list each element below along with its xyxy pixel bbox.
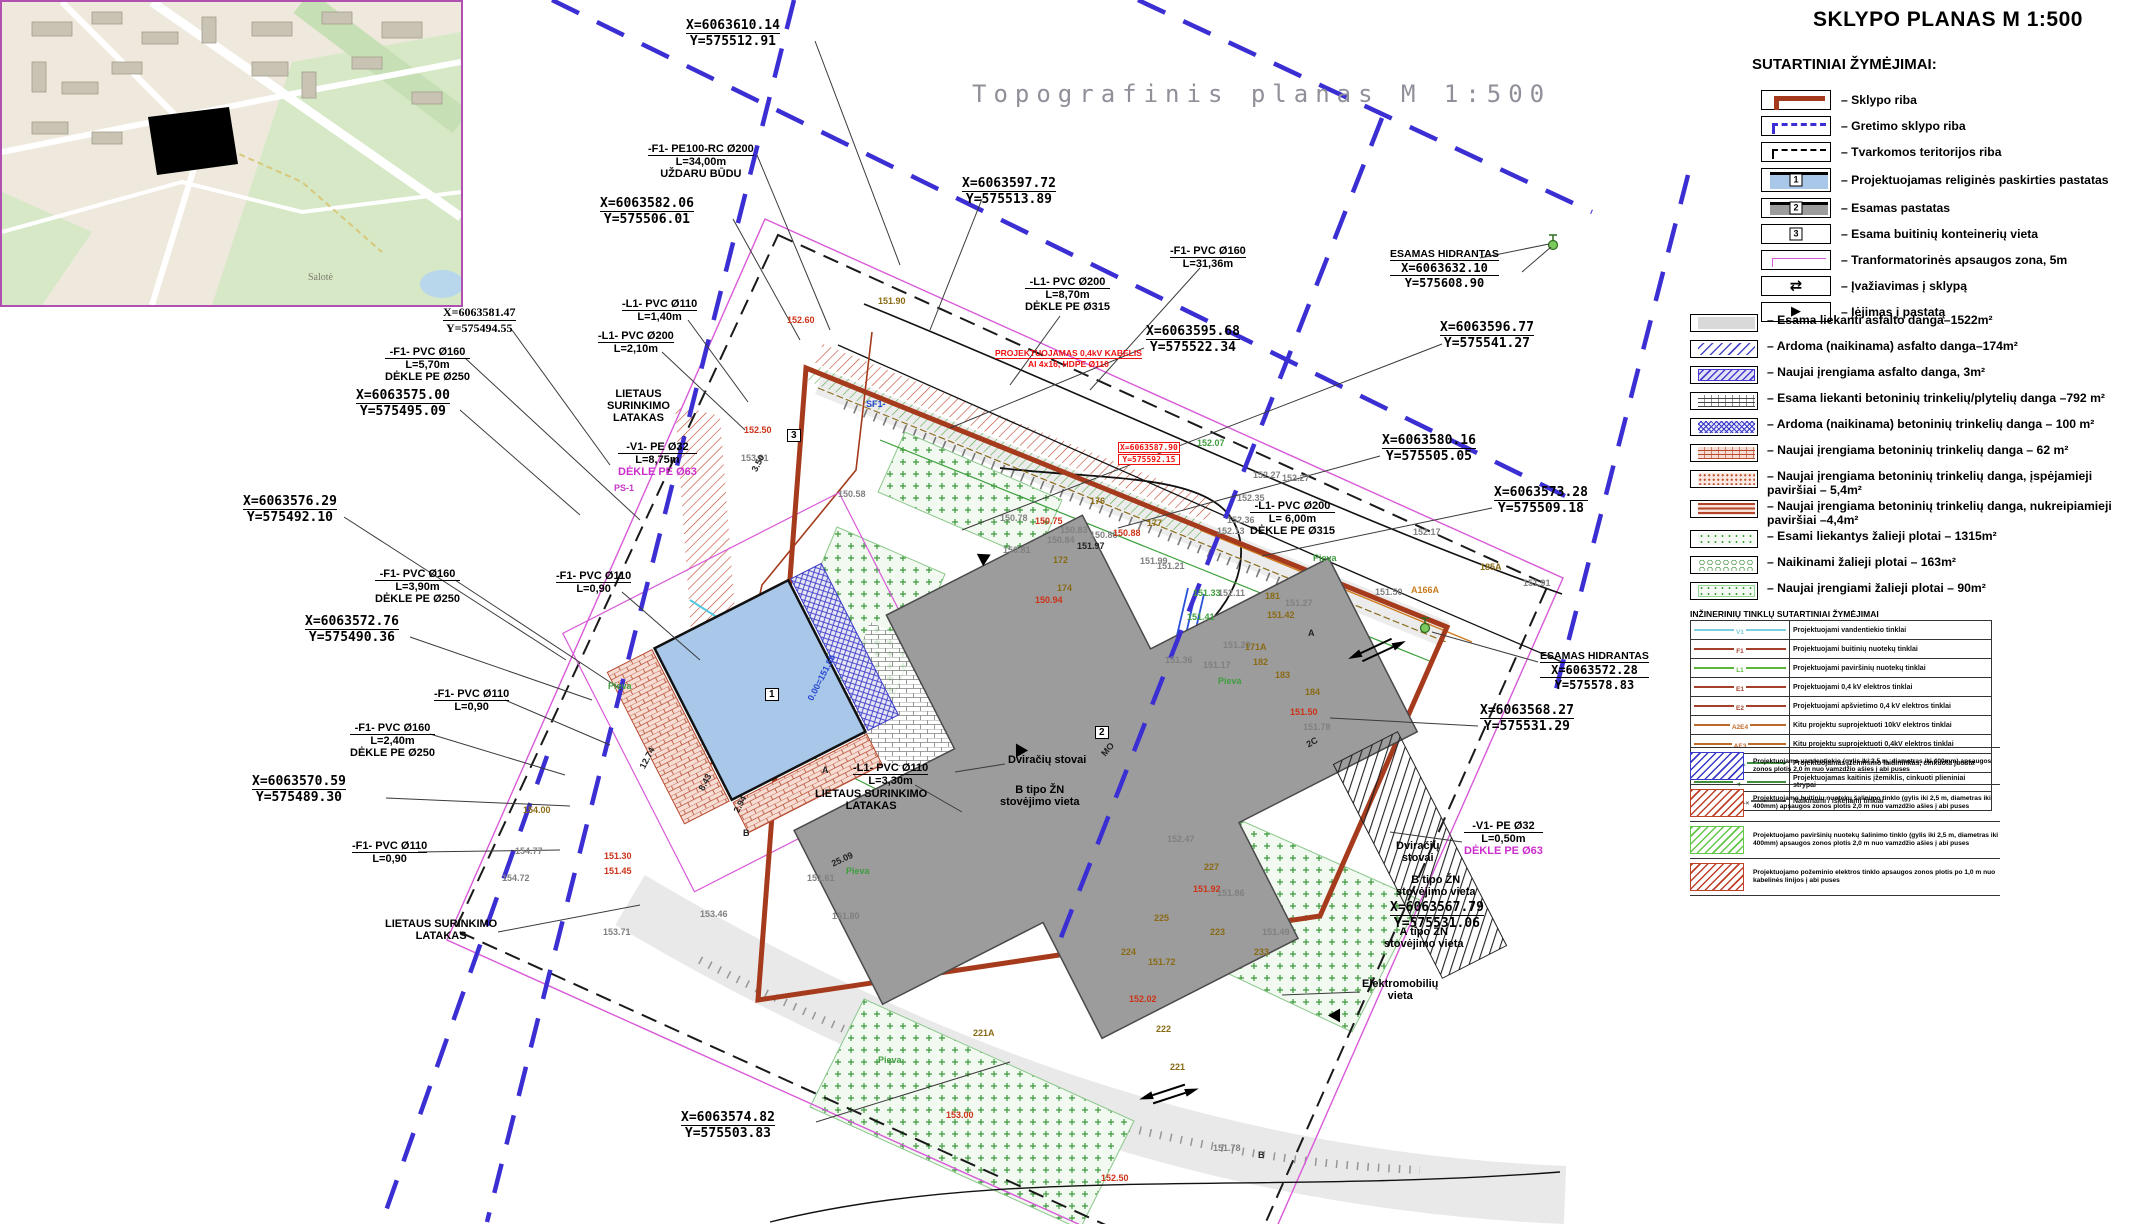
network-label: Projektuojami 0,4 kV elektros tinklai [1790, 678, 1992, 697]
legend-symbol-swatch [1761, 90, 1831, 110]
networks-table-row: A2E4 Kitu projektu suprojektuoti 10kV el… [1691, 716, 1992, 735]
legend-symbol-label: – Tranformatorinės apsaugos zona, 5m [1841, 253, 2067, 267]
legend-area-item: – Esami liekantys žalieji plotai – 1315m… [1690, 527, 2128, 553]
protection-note-item: Projektuojamo paviršinių nuotekų šalinim… [1690, 821, 2000, 858]
network-symbol-cell: E2 [1691, 697, 1790, 716]
network-code: E1 [1734, 686, 1746, 693]
legend-symbol-item: – Įvažiavimas į sklypą [1761, 276, 2109, 296]
legend-symbol-item: – Esama buitinių konteinerių vieta [1761, 224, 2109, 244]
legend-symbol-swatch [1761, 250, 1831, 270]
legend-symbol-item: – Tvarkomos teritorijos riba [1761, 142, 2109, 162]
networks-table-row: V1 Projektuojami vandentiekio tinklai [1691, 621, 1992, 640]
protection-note-swatch [1690, 752, 1744, 780]
legend-area-label: – Naujai įrengiami žalieji plotai – 90m² [1767, 582, 1986, 596]
legend-symbol-swatch [1761, 142, 1831, 162]
legend-area-item: – Ardoma (naikinama) betoninių trinkelių… [1690, 415, 2128, 441]
network-label: Projektuojami buitinių nuotekų tinklai [1790, 640, 1992, 659]
legend-symbol-label: – Esama buitinių konteinerių vieta [1841, 227, 2038, 241]
legend-symbol-item: – Tranformatorinės apsaugos zona, 5m [1761, 250, 2109, 270]
legend-area-swatch [1690, 500, 1758, 518]
legend-area-swatch [1690, 470, 1758, 488]
networks-table-heading: INŽINERINIŲ TINKLŲ SUTARTINIAI ŽYMĖJIMAI [1690, 609, 1879, 619]
network-symbol-cell: V1 [1691, 621, 1790, 640]
legend-area-swatch [1690, 418, 1758, 436]
legend-symbol-label: – Įvažiavimas į sklypą [1841, 279, 1967, 293]
legend-symbol-label: – Projektuojamas religinės paskirties pa… [1841, 173, 2109, 187]
legend-area-label: – Naujai įrengiama betoninių trinkelių d… [1767, 500, 2128, 527]
network-code: E2 [1734, 705, 1746, 712]
protection-note-text: Projektuojamo paviršinių nuotekų šalinim… [1753, 832, 2000, 848]
legend-symbol-label: – Esamas pastatas [1841, 201, 1950, 215]
legend-symbol-label: – Gretimo sklypo riba [1841, 119, 1966, 133]
network-symbol-cell: L1 [1691, 659, 1790, 678]
network-code: A2E4 [1730, 724, 1750, 731]
protection-note-text: Projektuojamo vandentiekio (gylis iki 2,… [1753, 758, 2000, 774]
legend-area-swatch [1690, 444, 1758, 462]
network-symbol-cell: A2E4 [1691, 716, 1790, 735]
network-code: F1 [1734, 648, 1746, 655]
network-symbol-cell: E1 [1691, 678, 1790, 697]
legend-symbol-list: – Sklypo riba – Gretimo sklypo riba – Tv… [1761, 90, 2109, 322]
legend-area-label: – Esama liekanti asfalto danga–1522m² [1767, 314, 1993, 328]
legend-area-swatch [1690, 556, 1758, 574]
legend-area-label: – Esami liekantys žalieji plotai – 1315m… [1767, 530, 1997, 544]
legend-symbol-label: – Sklypo riba [1841, 93, 1917, 107]
legend-symbol-item: – Esamas pastatas [1761, 198, 2109, 218]
protection-note-swatch [1690, 826, 1744, 854]
legend-area-item: – Esama liekanti betoninių trinkelių/ply… [1690, 389, 2128, 415]
legend-area-label: – Naikinami žalieji plotai – 163m² [1767, 556, 1956, 570]
legend-symbol-swatch [1761, 224, 1831, 244]
map-place-label: Salotė [308, 272, 333, 283]
legend-symbol-swatch [1761, 276, 1831, 296]
legend-area-item: – Naikinami žalieji plotai – 163m² [1690, 553, 2128, 579]
network-symbol-cell: F1 [1691, 640, 1790, 659]
legend-area-swatch [1690, 582, 1758, 600]
legend-area-swatch [1690, 530, 1758, 548]
legend-area-label: – Esama liekanti betoninių trinkelių/ply… [1767, 392, 2105, 406]
legend-area-swatch [1690, 366, 1758, 384]
site-plan-drawing: Salotė Topografinis planas M 1:500 SKLYP… [0, 0, 2129, 1224]
network-code: V1 [1734, 629, 1746, 636]
legend-symbol-swatch [1761, 116, 1831, 136]
legend-symbol-item: – Gretimo sklypo riba [1761, 116, 2109, 136]
network-label: Projektuojami apšvietimo 0,4 kV elektros… [1790, 697, 1992, 716]
legend-area-swatch [1690, 392, 1758, 410]
topographic-plan-title: Topografinis planas M 1:500 [972, 80, 1551, 108]
legend-area-item: – Naujai įrengiama betoninių trinkelių d… [1690, 441, 2128, 467]
legend-symbol-item: – Projektuojamas religinės paskirties pa… [1761, 168, 2109, 192]
networks-table-row: E2 Projektuojami apšvietimo 0,4 kV elekt… [1691, 697, 1992, 716]
legend-area-item: – Naujai įrengiama betoninių trinkelių d… [1690, 497, 2128, 527]
protection-note-item: Projektuojamo požeminio elektros tinklo … [1690, 858, 2000, 896]
networks-table-row: F1 Projektuojami buitinių nuotekų tinkla… [1691, 640, 1992, 659]
legend-area-item: – Naujai įrengiama betoninių trinkelių d… [1690, 467, 2128, 497]
protection-note-item: Projektuojamo buitinių nuotekų šalinimo … [1690, 784, 2000, 821]
legend-area-item: – Esama liekanti asfalto danga–1522m² [1690, 311, 2128, 337]
locator-map-inset: Salotė [0, 0, 463, 307]
legend-area-label: – Naujai įrengiama betoninių trinkelių d… [1767, 444, 2068, 458]
protection-note-swatch [1690, 863, 1744, 891]
legend-area-swatch [1690, 314, 1758, 332]
legend-symbol-label: – Tvarkomos teritorijos riba [1841, 145, 2002, 159]
legend-symbol-item: – Sklypo riba [1761, 90, 2109, 110]
protection-note-text: Projektuojamo buitinių nuotekų šalinimo … [1753, 795, 2000, 811]
legend-area-label: – Ardoma (naikinama) betoninių trinkelių… [1767, 418, 2094, 432]
networks-table-row: L1 Projektuojami paviršinių nuotekų tink… [1691, 659, 1992, 678]
networks-table-row: E1 Projektuojami 0,4 kV elektros tinklai [1691, 678, 1992, 697]
legend-area-item: – Ardoma (naikinama) asfalto danga–174m² [1690, 337, 2128, 363]
protection-notes-list: Projektuojamo vandentiekio (gylis iki 2,… [1690, 747, 2000, 896]
protection-note-item: Projektuojamo vandentiekio (gylis iki 2,… [1690, 747, 2000, 784]
legend-area-label: – Naujai įrengiama asfalto danga, 3m² [1767, 366, 1985, 380]
legend-symbol-swatch [1761, 198, 1831, 218]
hydrant-symbol [1549, 235, 1558, 250]
legend-area-swatch [1690, 340, 1758, 358]
legend-area-item: – Naujai įrengiama asfalto danga, 3m² [1690, 363, 2128, 389]
legend-area-item: – Naujai įrengiami žalieji plotai – 90m² [1690, 579, 2128, 605]
protection-note-text: Projektuojamo požeminio elektros tinklo … [1753, 869, 2000, 885]
legend-area-list: – Esama liekanti asfalto danga–1522m² – … [1690, 311, 2128, 605]
site-location-marker [148, 107, 238, 175]
network-label: Projektuojami paviršinių nuotekų tinklai [1790, 659, 1992, 678]
legend-area-label: – Naujai įrengiama betoninių trinkelių d… [1767, 470, 2128, 497]
legend-area-label: – Ardoma (naikinama) asfalto danga–174m² [1767, 340, 2018, 354]
network-label: Kitu projektu suprojektuoti 10kV elektro… [1790, 716, 1992, 735]
network-code: L1 [1734, 667, 1746, 674]
protection-note-swatch [1690, 789, 1744, 817]
locator-map-graphic [2, 2, 461, 305]
legend-symbol-swatch [1761, 168, 1831, 192]
network-label: Projektuojami vandentiekio tinklai [1790, 621, 1992, 640]
